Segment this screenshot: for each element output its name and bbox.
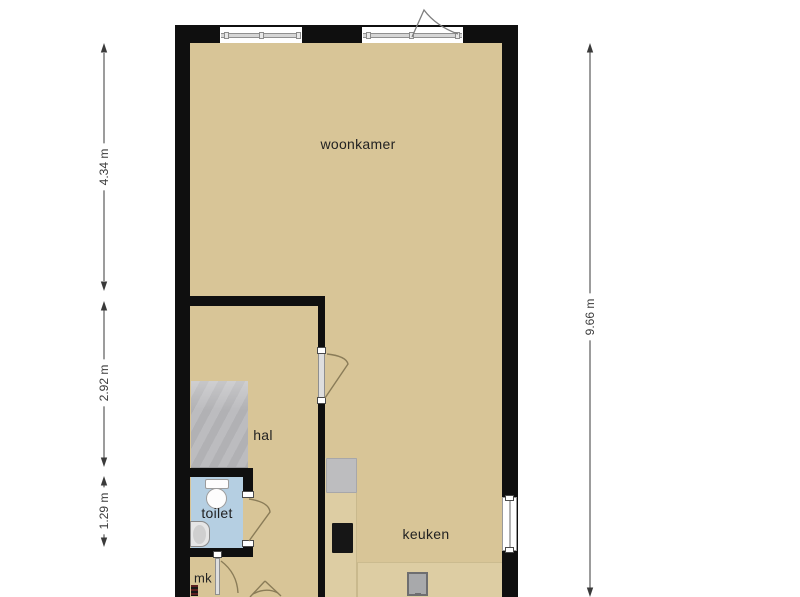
wall-left (175, 25, 190, 597)
room-label-hal: hal (253, 427, 273, 443)
window-left-mullion (224, 32, 229, 39)
window-right-mullion (409, 32, 414, 39)
room-label-mk: mk (194, 571, 212, 586)
room-floor-woonkamer (190, 43, 502, 296)
toilet-sink (190, 521, 210, 547)
electric-meter (191, 585, 198, 596)
room-label-woonkamer: woonkamer (320, 136, 395, 152)
mk-door-hinge (213, 551, 222, 558)
window-left-mullion (296, 32, 301, 39)
window-right-mullion (366, 32, 371, 39)
door-jamb (509, 501, 511, 547)
refrigerator (326, 458, 357, 493)
hal-door-hinge-top (317, 347, 326, 354)
side-door-hinge-bottom (505, 547, 514, 553)
dimension-label-left-bottom: 1.29 m (96, 488, 112, 535)
toilet-door-hinge-bottom (242, 540, 254, 547)
kitchen-counter-bottom (357, 562, 502, 597)
room-label-toilet: toilet (201, 505, 232, 521)
side-door-hinge-top (505, 495, 514, 501)
dimension-label-right: 9.66 m (582, 294, 598, 341)
cooktop (332, 523, 353, 553)
window-right-mullion (455, 32, 460, 39)
wall-hal-keuken (318, 296, 325, 597)
room-label-keuken: keuken (403, 526, 450, 542)
hal-door-leaf (318, 353, 325, 399)
window-left-mullion (259, 32, 264, 39)
dimension-label-left-middle: 2.92 m (96, 360, 112, 407)
toilet-door-hinge-top (242, 491, 254, 498)
floor-plan: woonkamer hal toilet keuken mk 4.34 m 2.… (0, 0, 800, 597)
side-entrance-door (502, 497, 517, 551)
wall-hal-woonkamer (190, 296, 325, 306)
mk-door-leaf (215, 558, 220, 595)
staircase (191, 381, 248, 468)
dimension-label-left-top: 4.34 m (96, 144, 112, 191)
kitchen-sink-tap (415, 593, 421, 595)
toilet-door-opening (243, 498, 253, 540)
hal-door-hinge-bottom (317, 397, 326, 404)
sink-basin (193, 525, 206, 544)
